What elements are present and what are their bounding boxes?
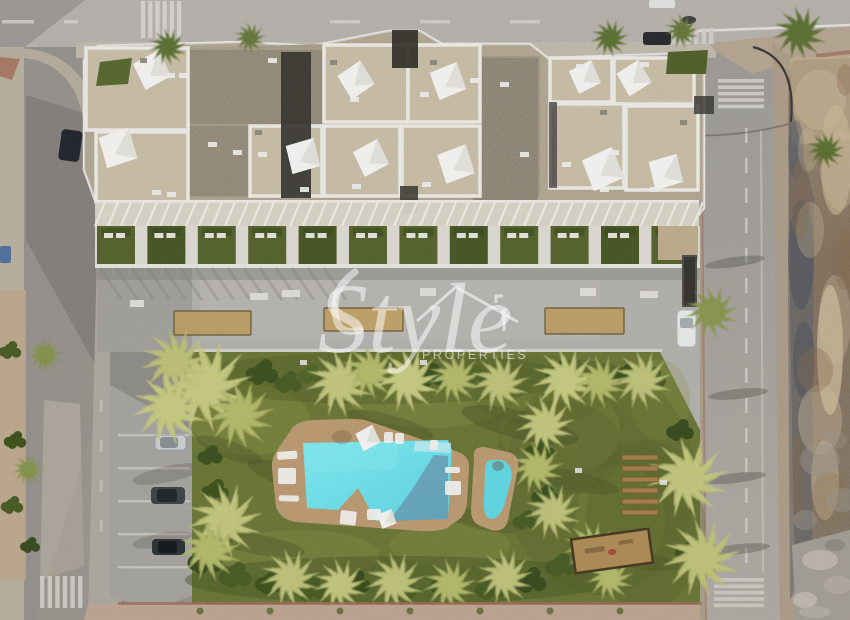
svg-text:PROPERTIES: PROPERTIES	[422, 348, 528, 362]
